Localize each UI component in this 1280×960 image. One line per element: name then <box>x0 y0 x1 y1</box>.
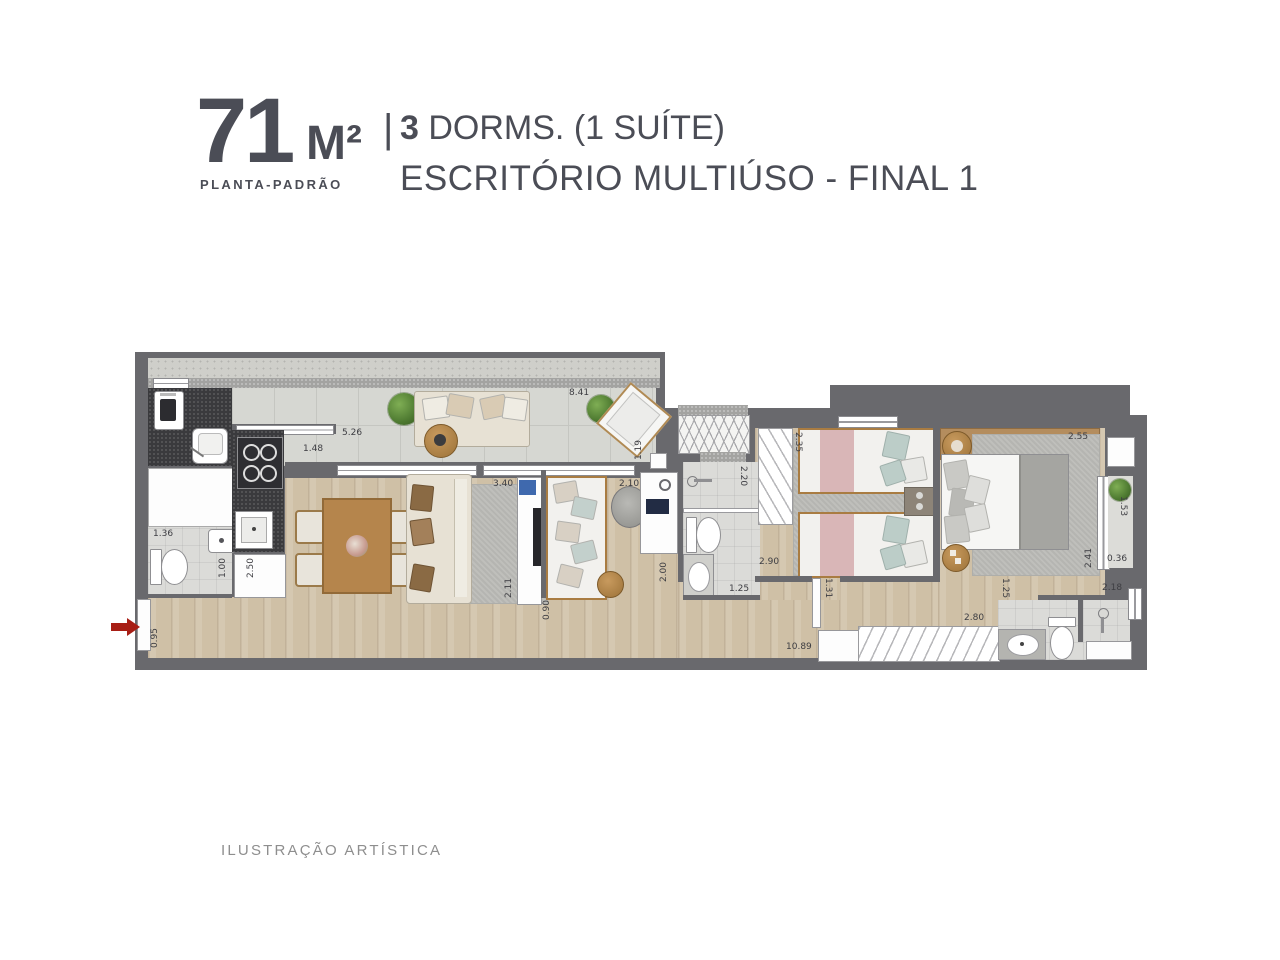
twin-master-wall <box>933 428 940 582</box>
suite-shower-tray <box>1086 641 1132 660</box>
floorplan-page: 71 M² PLANTA-PADRÃO | 3 DORMS. (1 SUÍTE)… <box>0 0 1280 960</box>
suite-vanity <box>998 629 1046 660</box>
dim-suite-bath-opening: 1.25 <box>999 578 1009 598</box>
twin-nightstand <box>904 487 936 516</box>
dining-chair-2 <box>295 553 325 587</box>
entry-arrow-shaft <box>111 623 127 631</box>
dim-kitchen-counter: 2.50 <box>247 558 257 578</box>
title-separator: | <box>383 107 393 152</box>
master-wardrobe <box>858 626 1000 662</box>
twin-bed-2 <box>798 512 936 578</box>
dim-kitchen-opening: 1.48 <box>303 445 323 455</box>
laptop <box>646 499 669 514</box>
dim-office-opening: 0.90 <box>543 600 553 620</box>
shower2-arm <box>694 479 712 482</box>
ac-ledge <box>678 405 748 415</box>
duct-shaft-2 <box>1107 437 1135 467</box>
area-number: 71 <box>196 94 292 169</box>
dim-balcony-end-depth: 1.19 <box>635 440 645 460</box>
title-subtitle: ESCRITÓRIO MULTIÚSO - FINAL 1 <box>400 159 978 199</box>
dim-living-width: 3.40 <box>493 480 513 490</box>
balcony-sliding-door-2 <box>483 465 635 476</box>
kitchen-sink <box>235 511 273 549</box>
plan-type-label: PLANTA-PADRÃO <box>200 177 343 192</box>
dim-master-depth: 2.41 <box>1085 548 1095 568</box>
bathroom2-vanity <box>683 554 714 599</box>
dim-office-width: 2.10 <box>619 480 639 490</box>
dim-corridor-length: 10.89 <box>786 643 812 653</box>
dim-master-width: 2.55 <box>1068 433 1088 443</box>
storage-room <box>148 468 234 527</box>
dim-laundry-depth: 1.14 <box>191 389 201 409</box>
shower2-glass <box>683 508 762 513</box>
dim-bath2-shower-depth: 2.20 <box>737 466 747 486</box>
toilet1-bowl <box>161 549 188 585</box>
living-sofa <box>406 474 472 604</box>
dim-bath2-width: 1.25 <box>729 585 749 595</box>
dim-balcony-length: 8.41 <box>569 389 589 399</box>
tv-panel <box>517 477 542 605</box>
dim-master-balcony-width: 0.36 <box>1107 555 1127 565</box>
table-centerpiece <box>346 535 368 557</box>
kitchen-cabinet <box>234 554 286 598</box>
artistic-illustration-note: ILUSTRAÇÃO ARTÍSTICA <box>221 842 442 859</box>
area-unit: M² <box>306 116 362 171</box>
dim-entry-width: 0.95 <box>151 628 161 648</box>
office-stool <box>597 571 624 598</box>
facade-ledge <box>148 358 660 378</box>
dim-living-depth: 2.11 <box>505 578 515 598</box>
dim-suite-bath-width: 2.18 <box>1102 584 1122 594</box>
bath2-corridor-wall <box>683 595 760 600</box>
master-bed <box>941 454 1069 550</box>
dim-master-wardrobe-width: 2.80 <box>964 614 984 624</box>
twin-bottom-wall-2 <box>840 576 938 582</box>
dim-bath2-depth: 2.00 <box>660 562 670 582</box>
twin-door-leaf <box>812 578 821 628</box>
washing-machine <box>154 391 184 430</box>
media-box <box>519 480 536 495</box>
dim-twin-opening: 2.90 <box>759 558 779 568</box>
stove <box>237 437 283 489</box>
dining-table <box>322 498 392 594</box>
desk-lamp <box>659 479 671 491</box>
dim-bath1-depth: 1.00 <box>219 558 229 578</box>
duct-shaft-1 <box>650 453 667 469</box>
twin-bottom-wall-1 <box>755 576 812 582</box>
balcony-coffee-table <box>424 424 458 458</box>
laundry-sink <box>192 428 228 464</box>
tv-screen <box>533 508 541 566</box>
dining-chair-1 <box>295 510 325 544</box>
twin-closet <box>758 428 793 525</box>
dorms-count: 3 <box>400 109 419 147</box>
master-dresser <box>818 630 860 662</box>
ac-condenser-grille <box>678 415 750 454</box>
twin-bed-1 <box>798 428 936 494</box>
toilet2-bowl <box>696 517 721 553</box>
dim-master-balcony-depth: 1.53 <box>1117 496 1127 516</box>
office-desk <box>640 472 678 554</box>
suite-shower-wall <box>1078 600 1083 642</box>
facade-band <box>148 378 660 388</box>
suite-toilet-bowl <box>1050 626 1074 660</box>
dim-hall-opening: 1.31 <box>822 578 832 598</box>
entry-arrow-icon <box>127 618 140 636</box>
suite-shower-arm <box>1101 617 1104 633</box>
suite-bath-window <box>1128 588 1142 620</box>
twin-window <box>838 416 898 428</box>
dim-twin-closet-depth: 2.35 <box>792 432 802 452</box>
dorms-text: DORMS. (1 SUÍTE) <box>419 109 725 147</box>
suite-bath-wall <box>1038 595 1130 600</box>
bath1-wall <box>148 594 232 598</box>
dim-bath1-width: 1.36 <box>153 530 173 540</box>
ac-sill <box>700 452 746 462</box>
dim-balcony-seg1: 5.26 <box>342 429 362 439</box>
entry-hall-floor <box>148 597 285 658</box>
title-dorms: 3 DORMS. (1 SUÍTE) <box>400 109 725 148</box>
master-stool <box>942 544 970 572</box>
